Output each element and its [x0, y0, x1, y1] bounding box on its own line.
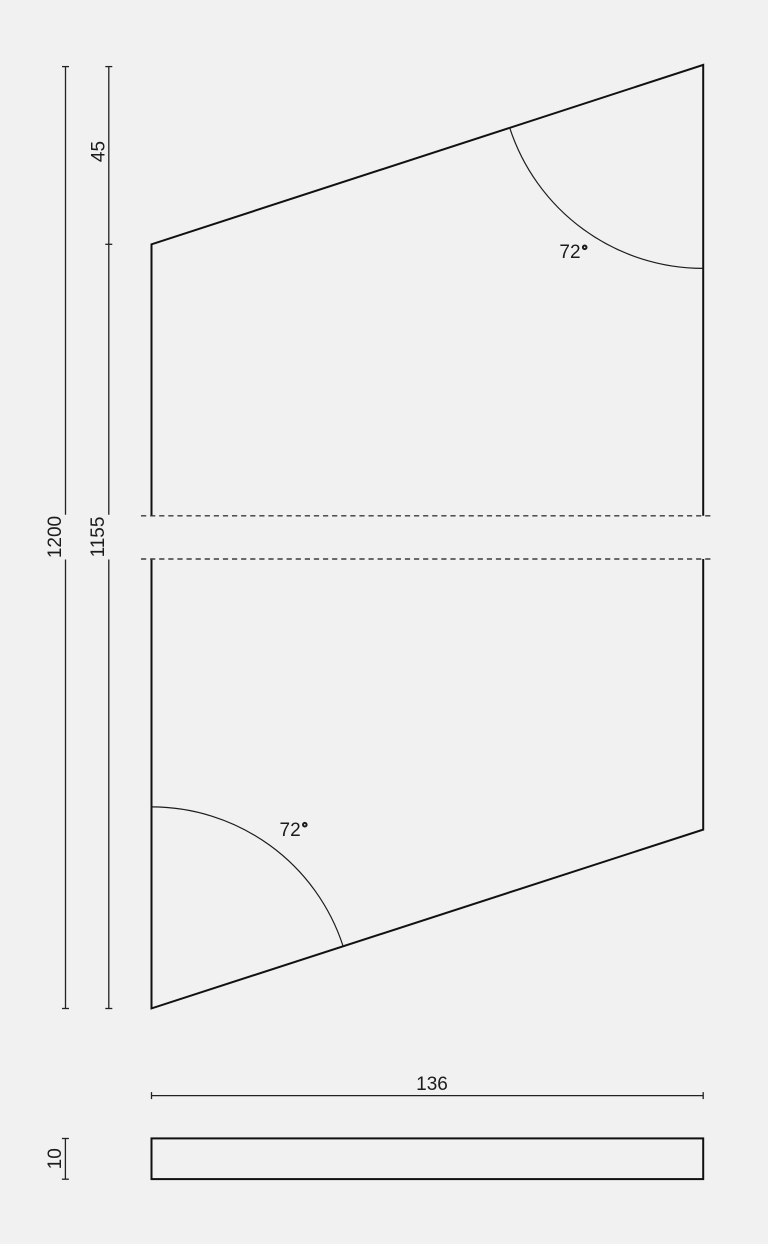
svg-text:72: 72	[280, 820, 301, 841]
svg-text:1200: 1200	[45, 516, 66, 558]
svg-text:10: 10	[45, 1148, 66, 1169]
svg-text:45: 45	[88, 141, 109, 162]
svg-text:1155: 1155	[88, 517, 109, 558]
svg-text:136: 136	[416, 1074, 448, 1095]
svg-text:72: 72	[559, 242, 580, 263]
